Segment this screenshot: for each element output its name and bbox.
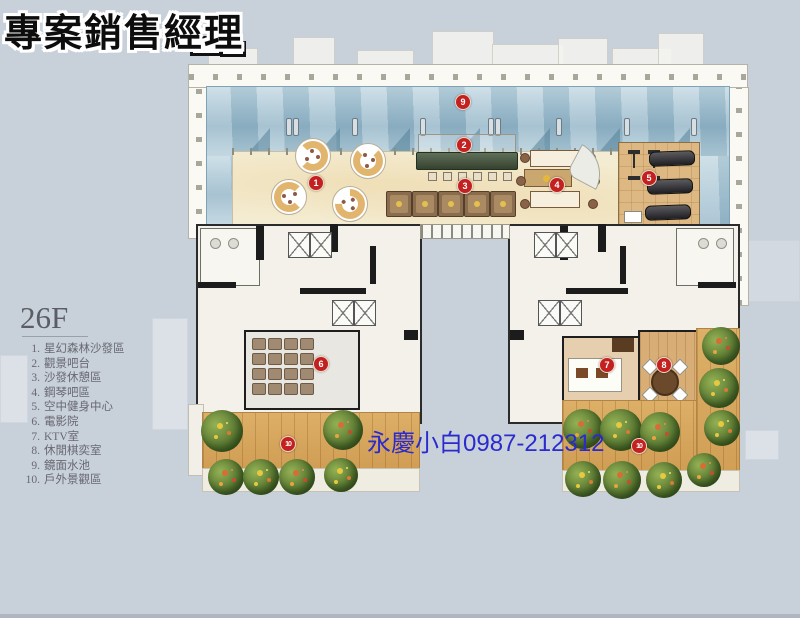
tree: [208, 459, 244, 495]
legend-divider: [22, 336, 88, 337]
interior-wall: [370, 246, 376, 284]
legend-item: 5.空中健身中心: [14, 400, 125, 415]
stair-elevator-symbol: [534, 232, 556, 258]
bar-stool: [443, 172, 452, 181]
legend-item: 4.鋼琴吧區: [14, 386, 125, 401]
piano-table: [530, 191, 580, 208]
tree: [279, 459, 315, 495]
lounge-seat: [490, 191, 516, 217]
tree: [704, 410, 740, 446]
cinema-seat: [300, 353, 314, 365]
tree: [646, 462, 682, 498]
piano-stool: [520, 153, 530, 163]
ktv-tv-wall: [612, 338, 634, 352]
bar-stool: [473, 172, 482, 181]
pergola-bridge: [420, 224, 510, 239]
pool-post: [691, 118, 697, 136]
lounge-seat: [412, 191, 438, 217]
cinema-seat: [300, 368, 314, 380]
stair-elevator-symbol: [288, 232, 310, 258]
plan-marker: 5: [641, 170, 657, 186]
legend-item: 6.電影院: [14, 415, 125, 430]
interior-wall: [198, 282, 236, 288]
interior-wall: [510, 330, 524, 340]
stair-elevator-symbol: [332, 300, 354, 326]
plan-marker: 9: [455, 94, 471, 110]
cinema-seat: [300, 338, 314, 350]
floor-label: 26F: [20, 300, 68, 336]
tree: [687, 453, 721, 487]
cinema-seat: [284, 353, 298, 365]
pool-post: [624, 118, 630, 136]
piano-stool: [588, 199, 598, 209]
bathroom: [676, 228, 734, 286]
lounge-seat: [438, 191, 464, 217]
weight-rack: [628, 150, 640, 180]
plan-marker: 10: [280, 436, 296, 452]
pool-post: [286, 118, 292, 136]
stair-elevator-symbol: [538, 300, 560, 326]
bath-fixture: [228, 238, 239, 249]
round-sofa: [350, 143, 386, 179]
legend-item: 1.星幻森林沙發區: [14, 342, 125, 357]
interior-wall: [256, 226, 264, 260]
plan-marker: 2: [456, 137, 472, 153]
lounge-seat: [386, 191, 412, 217]
tree: [699, 368, 739, 408]
cinema-seat: [268, 338, 282, 350]
interior-wall: [404, 330, 418, 340]
stair-elevator-symbol: [560, 300, 582, 326]
interior-wall: [620, 246, 626, 284]
page-title: 專案銷售經理: [4, 2, 244, 57]
plan-marker: 6: [313, 356, 329, 372]
tree: [603, 461, 641, 499]
bath-fixture: [698, 238, 709, 249]
interior-wall: [566, 288, 628, 294]
piano-stool: [520, 199, 530, 209]
cinema-seat: [284, 383, 298, 395]
cinema-seat: [268, 383, 282, 395]
bar-counter: [416, 152, 518, 170]
tree: [323, 410, 363, 450]
bar-stool: [503, 172, 512, 181]
legend-item: 9.鏡面水池: [14, 459, 125, 474]
cinema-seat: [252, 338, 266, 350]
stair-elevator-symbol: [310, 232, 332, 258]
ktv-cushion: [576, 368, 588, 378]
cinema-seat: [300, 383, 314, 395]
cinema-seat: [284, 338, 298, 350]
ad-banner: 鄉林皇居 白倍誠-加倍誠意 · 歡迎來電 永慶小白 0987-212312 LI…: [0, 517, 800, 618]
pool-post: [293, 118, 299, 136]
cinema-seat: [268, 353, 282, 365]
tree: [324, 458, 358, 492]
interior-wall: [300, 288, 366, 294]
page-bottom-strip: [0, 614, 800, 618]
plan-marker: 8: [656, 357, 672, 373]
legend-list: 1.星幻森林沙發區2.觀景吧台3.沙發休憩區4.鋼琴吧區5.空中健身中心6.電影…: [14, 342, 125, 488]
pool-post: [352, 118, 358, 136]
legend-item: 8.休閒棋奕室: [14, 444, 125, 459]
pool-post: [556, 118, 562, 136]
plan-marker: 10: [631, 438, 647, 454]
bath-fixture: [716, 238, 727, 249]
interior-wall: [598, 224, 606, 252]
cinema-seat: [252, 368, 266, 380]
stair-elevator-symbol: [556, 232, 578, 258]
legend-item: 10.戶外景觀區: [14, 473, 125, 488]
plan-marker: 1: [308, 175, 324, 191]
bar-stool: [428, 172, 437, 181]
plan-marker: 3: [457, 178, 473, 194]
interior-wall: [698, 282, 736, 288]
bathroom: [200, 228, 260, 286]
treadmill: [645, 204, 691, 221]
round-sofa: [295, 138, 331, 174]
round-sofa: [271, 179, 307, 215]
mirror-pool-left: [206, 156, 234, 227]
bath-fixture: [210, 238, 221, 249]
cinema-seat: [268, 368, 282, 380]
tree: [565, 461, 601, 497]
cinema-seat: [252, 383, 266, 395]
watermark: 永慶小白0987-212312: [367, 423, 604, 458]
lounge-seat: [464, 191, 490, 217]
stair-elevator-symbol: [354, 300, 376, 326]
treadmill: [649, 150, 695, 167]
cinema-seat: [252, 353, 266, 365]
gym-bench: [624, 211, 642, 223]
plan-marker: 7: [599, 357, 615, 373]
tree: [702, 327, 740, 365]
plan-marker: 4: [549, 177, 565, 193]
cinema-seat: [284, 368, 298, 380]
piano-stool: [516, 176, 526, 186]
legend-item: 3.沙發休憩區: [14, 371, 125, 386]
bar-stool: [488, 172, 497, 181]
flyer-page: 1234567891010 26F 1.星幻森林沙發區2.觀景吧台3.沙發休憩區…: [0, 0, 800, 618]
legend-item: 2.觀景吧台: [14, 357, 125, 372]
tree: [243, 459, 279, 495]
legend-item: 7.KTV室: [14, 430, 125, 445]
tree: [201, 410, 243, 452]
